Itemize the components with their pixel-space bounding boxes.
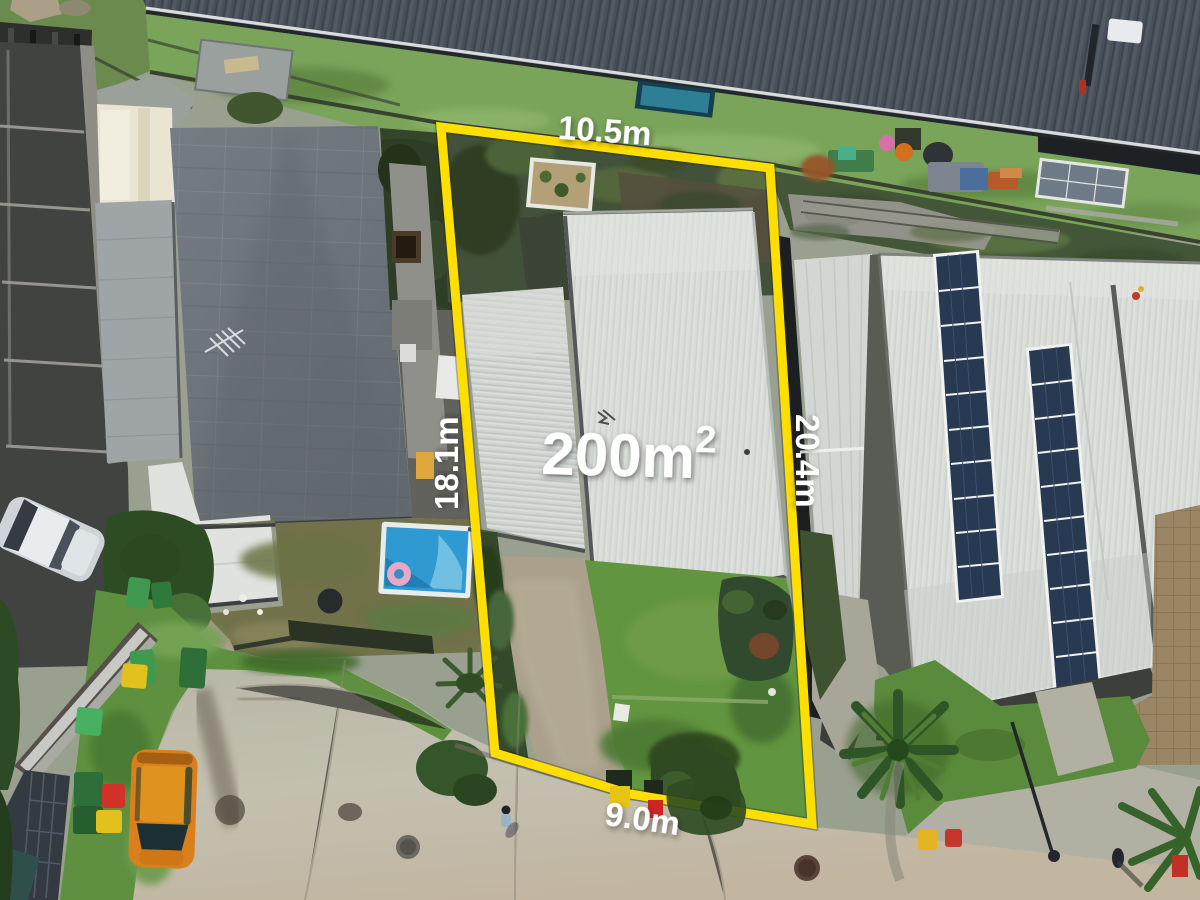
svg-text:200m2: 200m2: [541, 415, 717, 492]
svg-text:20.4m: 20.4m: [789, 414, 826, 508]
svg-text:18.1m: 18.1m: [428, 416, 465, 510]
svg-text:10.5m: 10.5m: [557, 109, 653, 152]
